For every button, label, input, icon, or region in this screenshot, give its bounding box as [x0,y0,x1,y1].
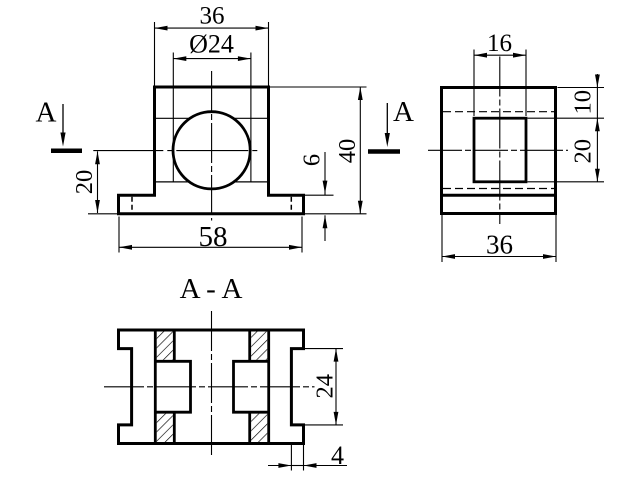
svg-text:24: 24 [312,374,339,399]
svg-text:A - A: A - A [180,273,243,305]
svg-text:36: 36 [200,3,225,30]
svg-text:16: 16 [487,30,512,57]
svg-text:36: 36 [486,230,513,260]
svg-text:40: 40 [334,139,361,164]
svg-text:A: A [393,96,414,128]
svg-text:Ø24: Ø24 [189,29,234,58]
svg-text:4: 4 [331,441,344,470]
svg-text:A: A [36,97,57,129]
svg-text:58: 58 [199,221,228,253]
svg-text:20: 20 [71,170,98,195]
svg-text:20: 20 [570,139,597,164]
svg-text:6: 6 [299,154,326,166]
svg-text:10: 10 [570,90,597,115]
